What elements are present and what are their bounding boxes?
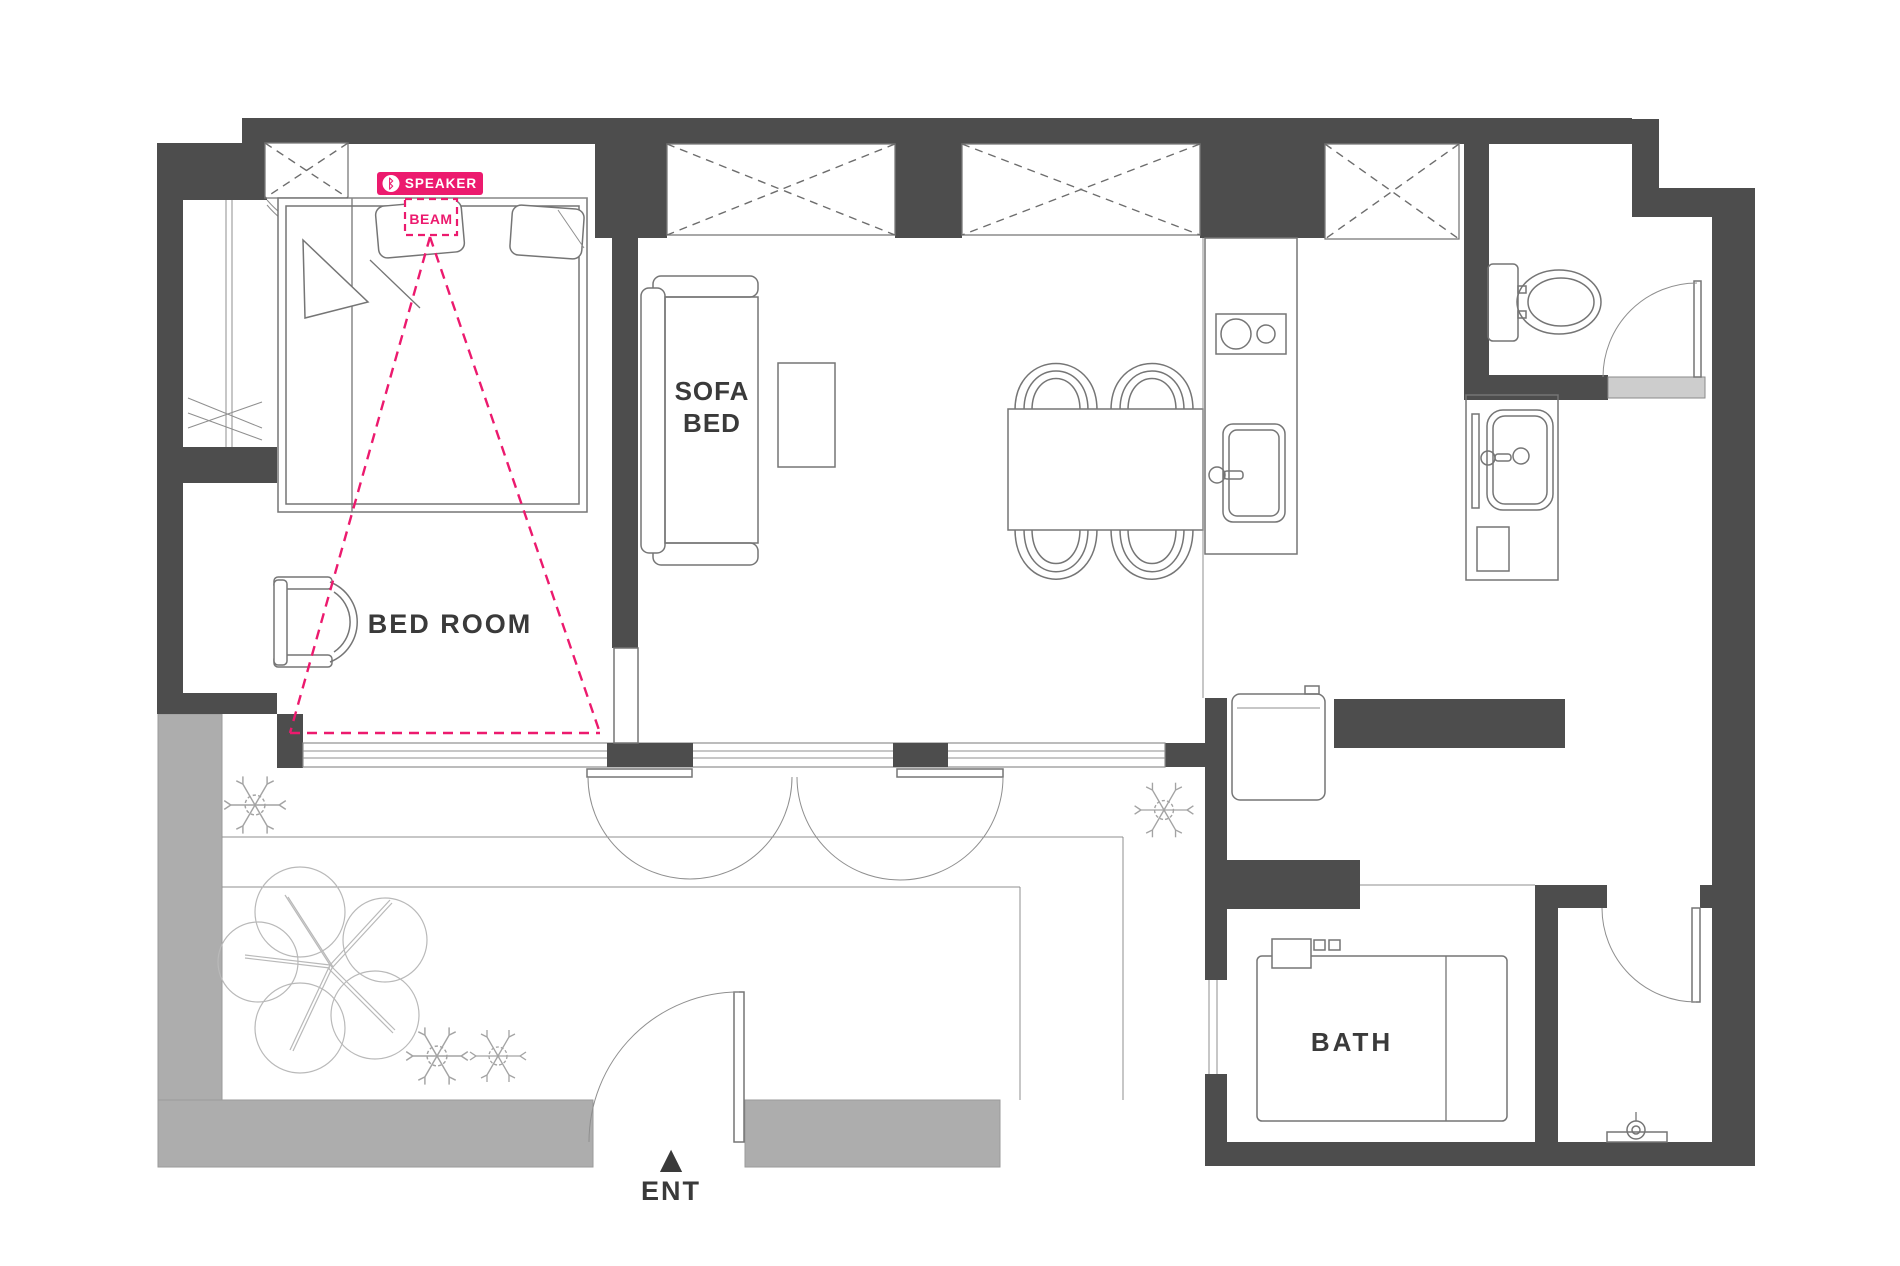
beam-label: BEAM xyxy=(409,211,452,227)
tree-icon xyxy=(224,776,286,833)
bedroom-label: BED ROOM xyxy=(368,609,533,639)
storage-shelves xyxy=(188,200,262,447)
closet-icon xyxy=(667,144,895,235)
closet-icon xyxy=(1325,144,1459,239)
beam-box: BEAM xyxy=(405,199,457,235)
dining-table xyxy=(1008,409,1203,530)
dining-set xyxy=(1008,364,1203,580)
dining-chair xyxy=(1015,529,1097,579)
closet-icon xyxy=(962,144,1200,235)
big-tree-icon xyxy=(218,867,427,1073)
window-band xyxy=(303,743,1165,767)
floor-plan: ᛒ SPEAKER BEAM BED ROOM SOFA BED BATH ▲ … xyxy=(0,0,1900,1266)
tree-icon xyxy=(470,1030,526,1082)
toilet-door xyxy=(1603,281,1705,398)
balcony-doors xyxy=(587,769,1003,880)
bluetooth-glyph: ᛒ xyxy=(387,176,395,191)
kitchen-counter xyxy=(1203,238,1297,698)
armchair xyxy=(274,577,357,667)
coffee-table xyxy=(778,363,835,467)
entrance-label: ENT xyxy=(641,1176,701,1206)
dining-chair xyxy=(1015,364,1097,411)
stove-icon xyxy=(1216,314,1286,354)
entrance-arrow-icon: ▲ xyxy=(652,1139,690,1181)
tree-icon xyxy=(1135,783,1194,838)
bath-room xyxy=(1205,885,1535,1121)
dining-chair xyxy=(1111,529,1193,579)
toilet xyxy=(1488,264,1601,341)
vanity-sink xyxy=(1466,395,1558,580)
entrance-door xyxy=(589,992,744,1142)
bath-label: BATH xyxy=(1311,1027,1393,1057)
speaker-badge: ᛒ SPEAKER xyxy=(377,172,483,195)
sofa-bed-label-line1: SOFA xyxy=(675,376,750,406)
balcony-walls xyxy=(158,714,1000,1167)
sofa-bed-label-line2: BED xyxy=(683,408,741,438)
dining-chair xyxy=(1111,364,1193,411)
kitchen-sink xyxy=(1209,424,1285,522)
utility-sink xyxy=(1607,1112,1667,1142)
washing-machine xyxy=(1232,686,1325,800)
balcony xyxy=(218,776,1193,1100)
speaker-label: SPEAKER xyxy=(405,176,477,191)
utility-room xyxy=(1602,908,1700,1142)
wall-column xyxy=(614,648,638,743)
tree-icon xyxy=(406,1027,468,1084)
